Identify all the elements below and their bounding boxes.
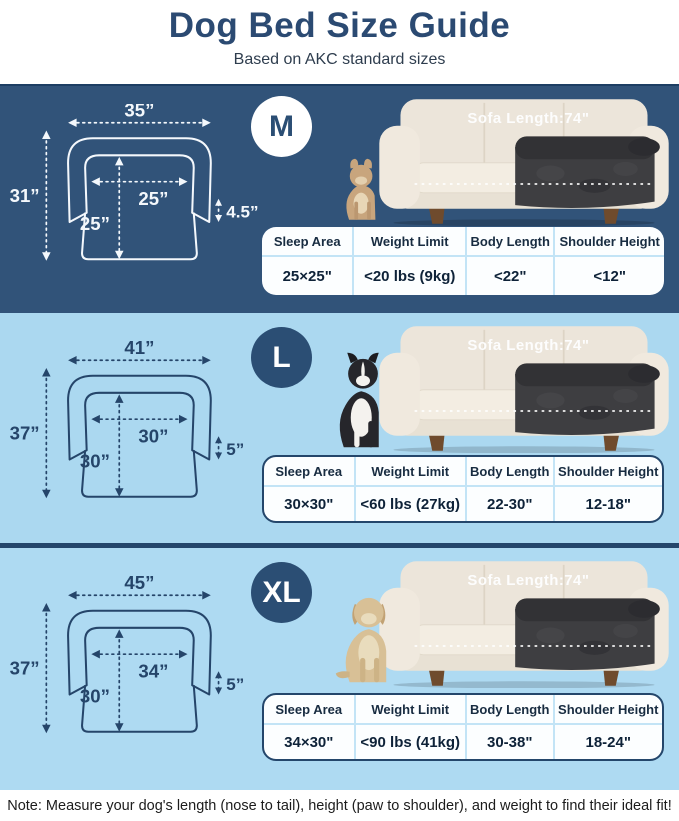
dim-inner-depth: 25” <box>80 213 110 234</box>
value-shoulder-height: 12-18" <box>555 487 662 521</box>
sofa-photo: Sofa Length:74" <box>374 94 674 226</box>
col-weight-limit: Weight Limit <box>356 457 467 487</box>
dog-photo-golden-retriever <box>334 590 402 684</box>
section-size-m: 35” 31” 25” 25” 4.5” M <box>0 84 679 313</box>
size-badge-l: L <box>251 327 312 388</box>
col-sleep-area: Sleep Area <box>262 227 354 257</box>
header: Dog Bed Size Guide Based on AKC standard… <box>0 0 679 84</box>
bed-dimensions-diagram-m: 35” 31” 25” 25” 4.5” <box>6 104 262 271</box>
col-body-length: Body Length <box>467 457 555 487</box>
dim-bolster-height: 5” <box>226 675 244 694</box>
section-size-l: 41” 37” 30” 30” 5” L <box>0 313 679 548</box>
col-body-length: Body Length <box>467 227 555 257</box>
value-body-length: 22-30" <box>467 487 555 521</box>
value-sleep-area: 25×25" <box>262 257 354 295</box>
dim-overall-height: 37” <box>10 422 40 443</box>
dog-bed-size-guide: Dog Bed Size Guide Based on AKC standard… <box>0 0 679 821</box>
dim-overall-height: 37” <box>10 657 40 678</box>
spec-table-l: Sleep Area Weight Limit Body Length Shou… <box>262 455 664 523</box>
value-body-length: <22" <box>467 257 555 295</box>
dim-inner-width: 25” <box>138 188 168 209</box>
sofa-length-label: Sofa Length:74" <box>467 572 589 589</box>
value-weight-limit: <20 lbs (9kg) <box>354 257 467 295</box>
size-letter: XL <box>262 576 300 610</box>
dim-bolster-height: 4.5” <box>226 202 258 221</box>
col-sleep-area: Sleep Area <box>264 695 356 725</box>
scene-m: Sofa Length:74" <box>328 94 676 228</box>
dim-overall-height: 31” <box>10 185 40 206</box>
col-shoulder-height: Shoulder Height <box>555 457 662 487</box>
size-badge-xl: XL <box>251 562 312 623</box>
scene-l: Sofa Length:74" <box>328 321 676 455</box>
spec-table-m: Sleep Area Weight Limit Body Length Shou… <box>262 227 664 295</box>
sofa-length-label: Sofa Length:74" <box>467 110 589 127</box>
size-badge-m: M <box>251 96 312 157</box>
value-weight-limit: <90 lbs (41kg) <box>356 725 467 759</box>
dim-overall-width: 45” <box>124 572 154 593</box>
value-weight-limit: <60 lbs (27kg) <box>356 487 467 521</box>
footer-note: Note: Measure your dog's length (nose to… <box>7 798 672 814</box>
dog-photo-border-collie <box>328 351 394 449</box>
col-weight-limit: Weight Limit <box>354 227 467 257</box>
size-letter: L <box>272 341 290 375</box>
dim-overall-width: 41” <box>124 337 154 358</box>
value-sleep-area: 30×30" <box>264 487 356 521</box>
page-title: Dog Bed Size Guide <box>0 6 679 46</box>
col-body-length: Body Length <box>467 695 555 725</box>
value-shoulder-height: 18-24" <box>555 725 662 759</box>
value-sleep-area: 34×30" <box>264 725 356 759</box>
bed-dimensions-diagram-xl: 45” 37” 34” 30” 5” <box>6 570 262 750</box>
sofa-length-label: Sofa Length:74" <box>467 337 589 354</box>
dim-inner-depth: 30” <box>80 450 110 471</box>
value-shoulder-height: <12" <box>555 257 664 295</box>
dim-inner-depth: 30” <box>80 685 110 706</box>
dim-inner-width: 30” <box>138 425 168 446</box>
footer: Note: Measure your dog's length (nose to… <box>0 790 679 821</box>
col-shoulder-height: Shoulder Height <box>555 227 664 257</box>
col-weight-limit: Weight Limit <box>356 695 467 725</box>
bed-dimensions-diagram-l: 41” 37” 30” 30” 5” <box>6 335 262 515</box>
section-size-xl: 45” 37” 34” 30” 5” XL <box>0 548 679 790</box>
page-subtitle: Based on AKC standard sizes <box>0 51 679 69</box>
size-letter: M <box>269 110 294 144</box>
dim-inner-width: 34” <box>138 660 168 681</box>
dog-photo-french-bulldog <box>334 158 387 222</box>
scene-xl: Sofa Length:74" <box>328 556 676 690</box>
sofa-photo: Sofa Length:74" <box>374 556 674 688</box>
col-sleep-area: Sleep Area <box>264 457 356 487</box>
dim-overall-width: 35” <box>124 104 154 121</box>
sofa-photo: Sofa Length:74" <box>374 321 674 453</box>
spec-table-xl: Sleep Area Weight Limit Body Length Shou… <box>262 693 664 761</box>
dim-bolster-height: 5” <box>226 440 244 459</box>
value-body-length: 30-38" <box>467 725 555 759</box>
col-shoulder-height: Shoulder Height <box>555 695 662 725</box>
